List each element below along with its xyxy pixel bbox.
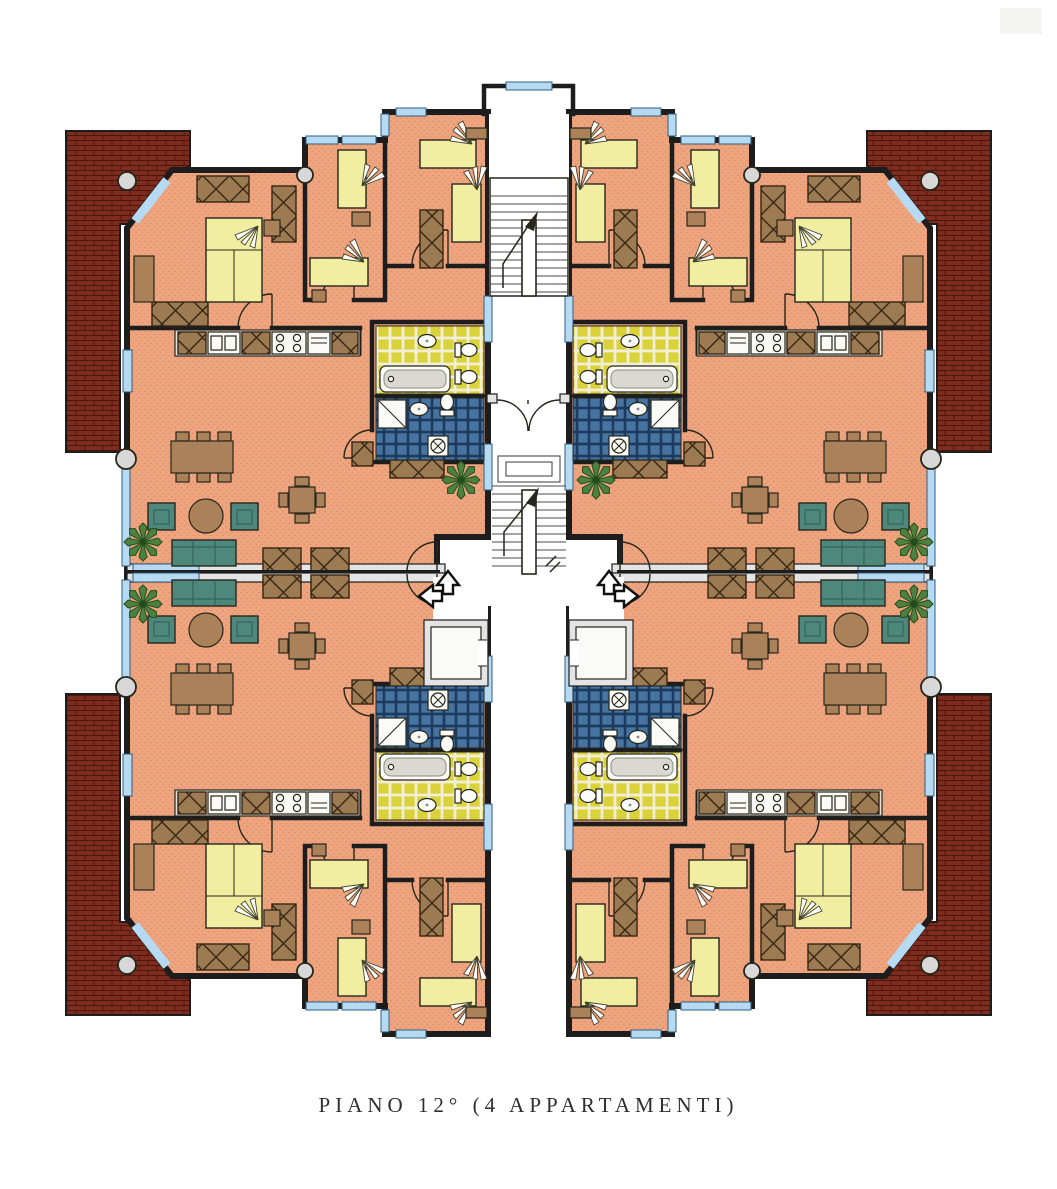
floor-plan-drawing bbox=[0, 0, 1057, 1189]
floor-plan-page: PIANO 12° (4 APPARTAMENTI) bbox=[0, 0, 1057, 1189]
apartment-top-left bbox=[66, 108, 493, 573]
staircase-upper bbox=[489, 114, 569, 296]
plan-caption: PIANO 12° (4 APPARTAMENTI) bbox=[0, 1093, 1057, 1118]
scan-artifact bbox=[1000, 8, 1042, 34]
apartment-top-right bbox=[564, 108, 991, 573]
